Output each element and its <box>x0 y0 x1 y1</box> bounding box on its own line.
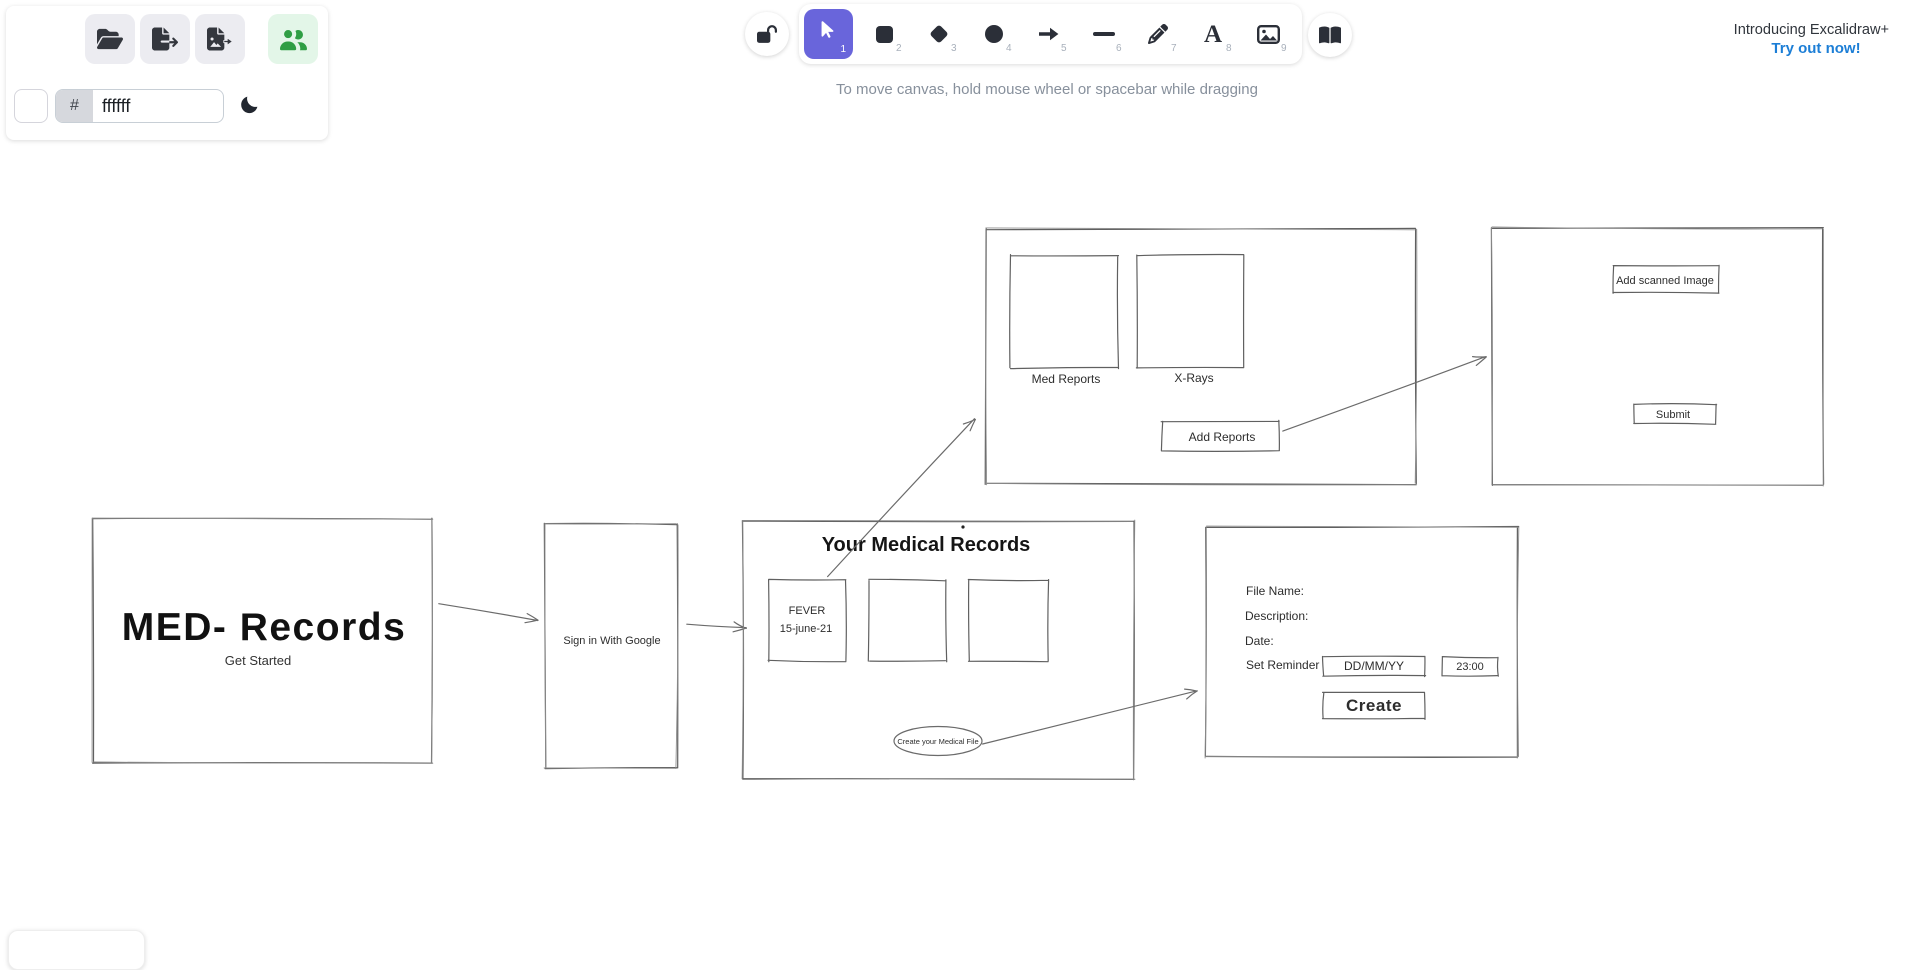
svg-text:Add scanned Image: Add scanned Image <box>1616 275 1714 287</box>
svg-text:X-Rays: X-Rays <box>1174 371 1213 385</box>
svg-text:Med Reports: Med Reports <box>1032 372 1101 386</box>
svg-text:Sign in With Google: Sign in With Google <box>563 635 660 647</box>
svg-text:Date:: Date: <box>1245 634 1274 648</box>
svg-text:File Name:: File Name: <box>1246 584 1304 598</box>
svg-text:23:00: 23:00 <box>1456 661 1484 673</box>
svg-text:Create: Create <box>1346 696 1402 715</box>
svg-text:DD/MM/YY: DD/MM/YY <box>1344 659 1404 673</box>
svg-text:MED- Records: MED- Records <box>122 606 407 649</box>
svg-text:Set Reminder: Set Reminder <box>1246 658 1319 672</box>
svg-text:Create your Medical File: Create your Medical File <box>897 737 978 746</box>
svg-text:Description:: Description: <box>1245 609 1308 623</box>
svg-text:FEVER: FEVER <box>789 605 826 617</box>
svg-text:Submit: Submit <box>1656 409 1690 421</box>
svg-text:15-june-21: 15-june-21 <box>780 623 833 635</box>
svg-text:Your Medical Records: Your Medical Records <box>822 534 1031 556</box>
svg-text:Get Started: Get Started <box>225 653 291 668</box>
svg-text:Add Reports: Add Reports <box>1189 430 1256 444</box>
